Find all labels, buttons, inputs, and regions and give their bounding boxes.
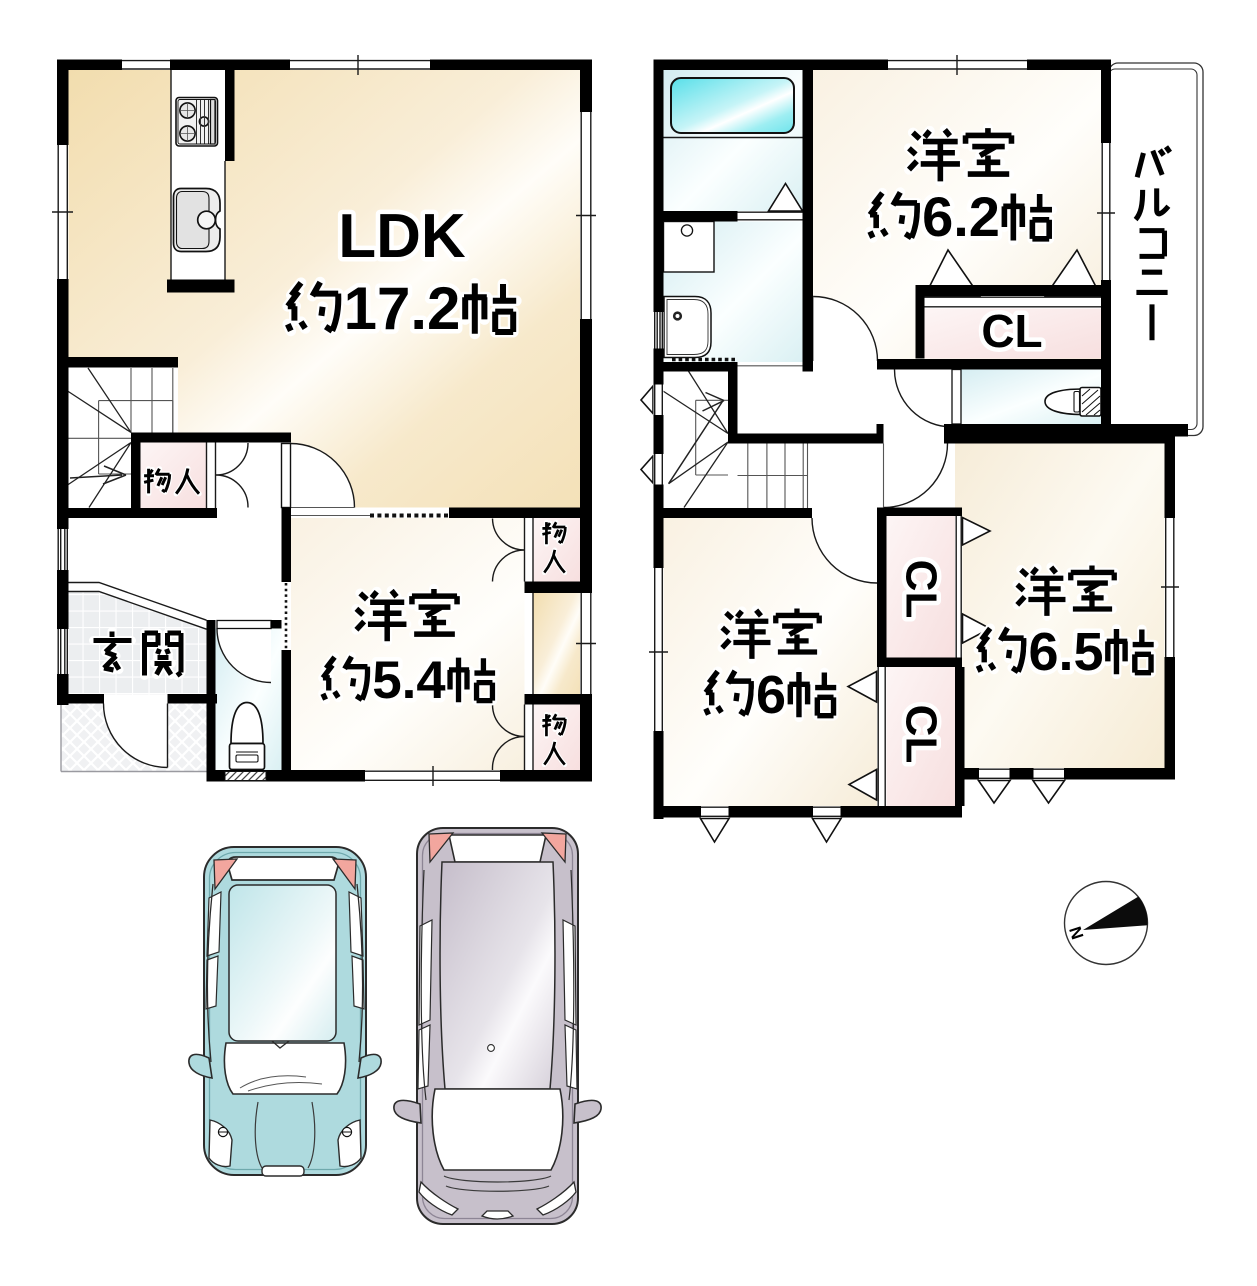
svg-text:CL: CL bbox=[897, 560, 946, 619]
svg-text:6.2: 6.2 bbox=[922, 185, 1000, 248]
svg-text:LDK: LDK bbox=[338, 202, 466, 271]
svg-text:6.5: 6.5 bbox=[1029, 622, 1104, 682]
svg-text:5.4: 5.4 bbox=[372, 651, 446, 710]
svg-text:6: 6 bbox=[756, 665, 786, 725]
svg-text:CL: CL bbox=[897, 705, 946, 764]
svg-text:CL: CL bbox=[981, 305, 1042, 357]
svg-text:17.2: 17.2 bbox=[344, 275, 461, 342]
